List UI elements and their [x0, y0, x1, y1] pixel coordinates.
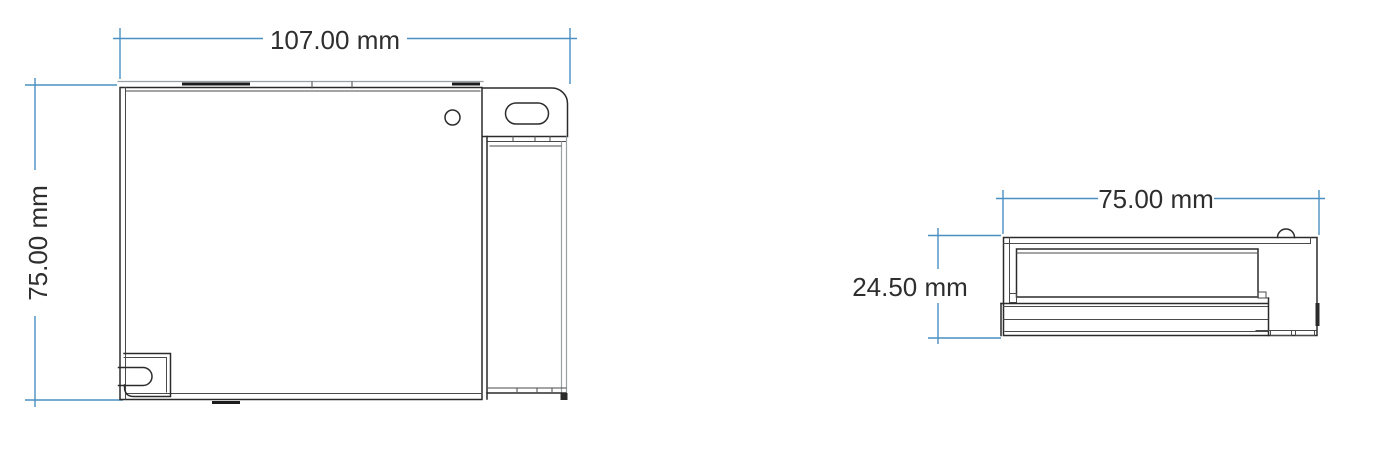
mounting-slot-top [506, 103, 549, 124]
front-height-dimension-label: 75.00 mm [23, 185, 53, 301]
case-outline [120, 88, 482, 400]
side-view-body [1001, 229, 1320, 336]
side-outline [1004, 238, 1318, 336]
terminal-compartment [487, 137, 568, 401]
side-height-dimension: 24.50 mm [852, 228, 1001, 344]
right-edge-mark [1316, 303, 1320, 326]
mounting-tab-outline [124, 354, 171, 397]
panel-left-step [1010, 294, 1017, 303]
mounting-tab-top-right [483, 88, 568, 142]
front-height-dimension: 75.00 mm [23, 78, 123, 407]
mounting-slot-bottom [119, 368, 153, 386]
panel-right-step [1258, 292, 1266, 298]
dimension-drawing-page: 107.00 mm 75.00 mm [0, 0, 1381, 464]
front-width-dimension-label: 107.00 mm [270, 25, 400, 55]
label-recess-panel [1017, 249, 1259, 297]
side-width-dimension-label: 75.00 mm [1098, 184, 1214, 214]
front-width-dimension: 107.00 mm [113, 25, 577, 84]
mounting-tab-bottom-left [119, 354, 171, 397]
front-view-drawing: 107.00 mm 75.00 mm [23, 25, 577, 407]
mounting-tab-outline [483, 88, 568, 137]
side-width-dimension: 75.00 mm [996, 184, 1325, 235]
snap-button-bump [1278, 229, 1295, 238]
front-view-body [118, 82, 483, 403]
corner-detail [561, 393, 568, 400]
indicator-hole [445, 110, 460, 125]
side-height-dimension-label: 24.50 mm [852, 272, 968, 302]
side-view-drawing: 75.00 mm 24.50 mm [852, 184, 1325, 344]
technical-drawing: 107.00 mm 75.00 mm [0, 0, 1381, 464]
